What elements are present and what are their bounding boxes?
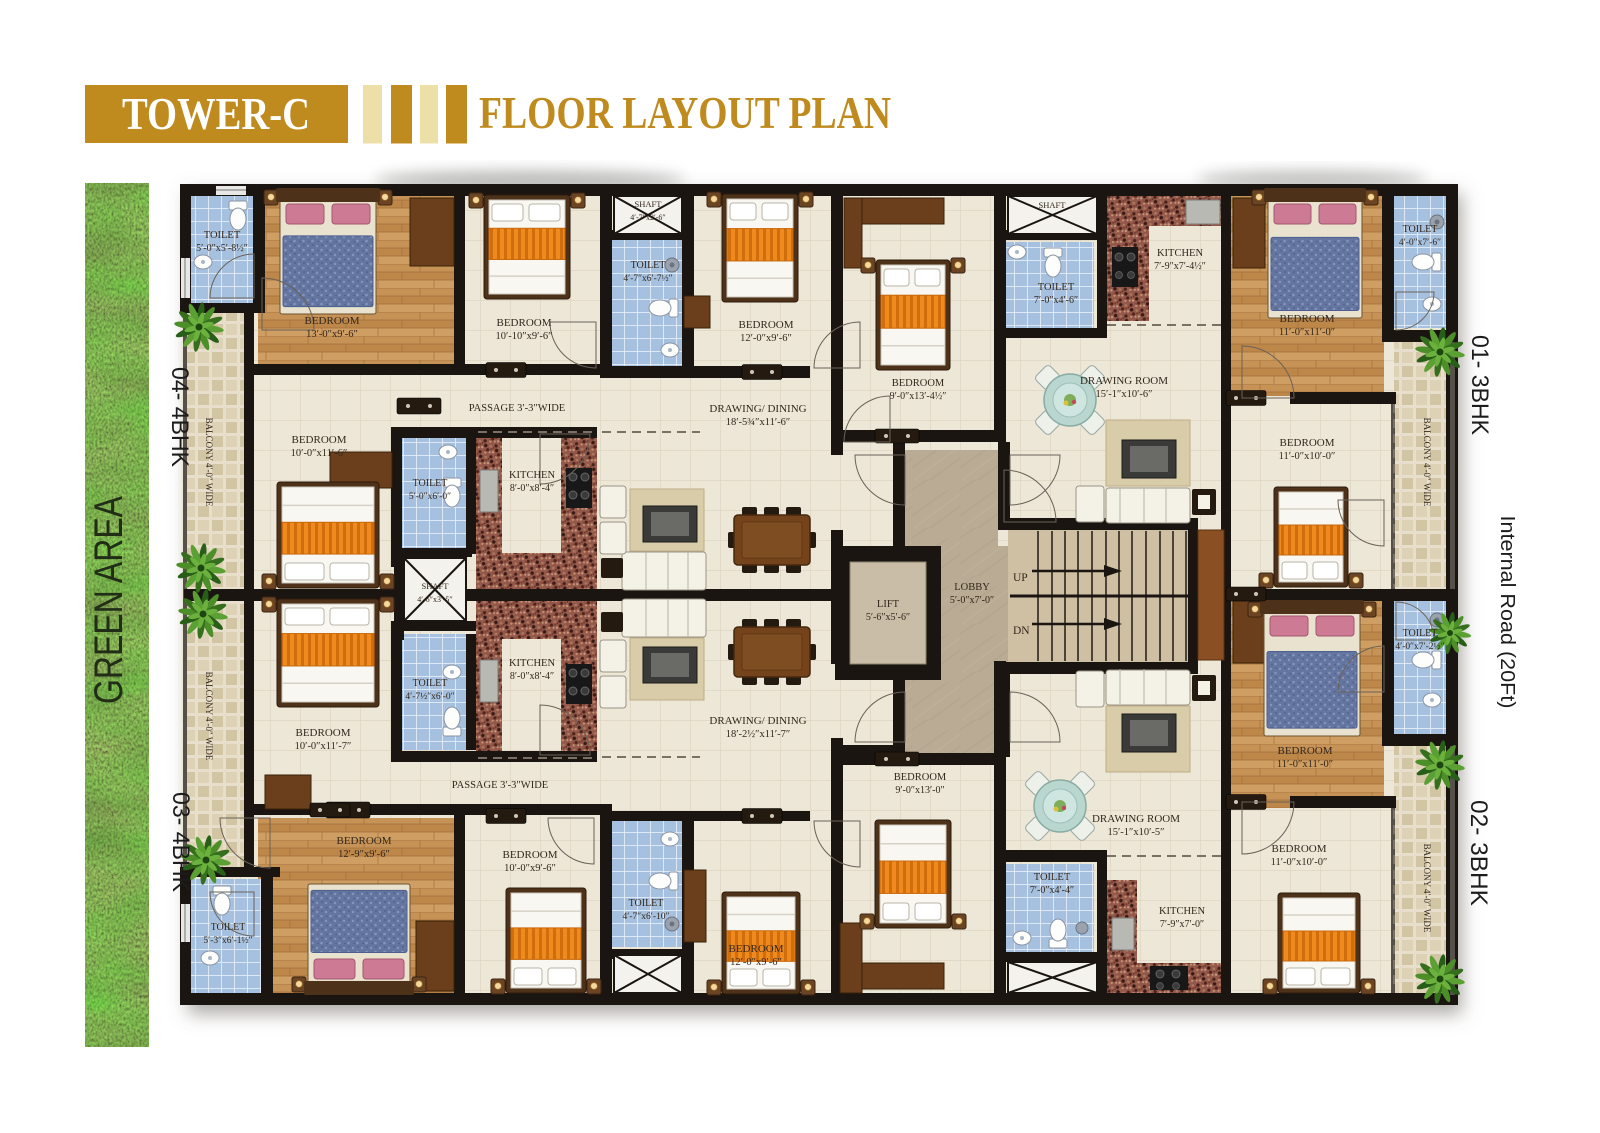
- svg-text:02- 3BHK: 02- 3BHK: [1465, 800, 1492, 906]
- svg-text:4′-6″x3′-5″: 4′-6″x3′-5″: [417, 595, 453, 604]
- svg-text:7′-9″x7′-0″: 7′-9″x7′-0″: [1160, 919, 1204, 930]
- svg-text:GREEN AREA: GREEN AREA: [87, 496, 131, 704]
- svg-text:5′-0″x5′-8½″: 5′-0″x5′-8½″: [196, 243, 248, 254]
- svg-text:7′-0″x4′-4″: 7′-0″x4′-4″: [1030, 885, 1074, 896]
- svg-text:4′-7″x6′-10″: 4′-7″x6′-10″: [623, 912, 670, 922]
- svg-text:KITCHEN: KITCHEN: [1159, 906, 1205, 917]
- svg-text:SHAFT: SHAFT: [1039, 200, 1067, 210]
- svg-text:TOILET: TOILET: [211, 922, 246, 933]
- svg-text:8′-0″x8′-4″: 8′-0″x8′-4″: [510, 671, 554, 682]
- svg-text:12′-9″x9′-6″: 12′-9″x9′-6″: [338, 849, 390, 860]
- svg-text:BALCONY 4′-0″ WIDE: BALCONY 4′-0″ WIDE: [204, 418, 214, 507]
- svg-text:11′-0″x10′-0″: 11′-0″x10′-0″: [1271, 857, 1328, 868]
- svg-text:BALCONY 4′-0″ WIDE: BALCONY 4′-0″ WIDE: [1422, 418, 1432, 507]
- svg-text:DN: DN: [1013, 625, 1030, 637]
- svg-text:SHAFT: SHAFT: [422, 581, 450, 591]
- svg-text:TOILET: TOILET: [1403, 224, 1438, 235]
- svg-text:7′-9″x7′-4½″: 7′-9″x7′-4½″: [1154, 261, 1206, 272]
- svg-text:BEDROOM: BEDROOM: [304, 315, 359, 327]
- svg-text:KITCHEN: KITCHEN: [509, 470, 555, 481]
- svg-text:TOILET: TOILET: [413, 478, 448, 489]
- svg-text:DRAWING/ DINING: DRAWING/ DINING: [709, 715, 806, 727]
- svg-text:BEDROOM: BEDROOM: [502, 849, 557, 861]
- svg-text:BEDROOM: BEDROOM: [1279, 437, 1334, 449]
- svg-text:TOILET: TOILET: [631, 260, 666, 271]
- svg-text:LOBBY: LOBBY: [954, 582, 990, 593]
- svg-text:5′-3″x6′-1½″: 5′-3″x6′-1½″: [203, 935, 252, 946]
- svg-text:13′-0″x9′-6″: 13′-0″x9′-6″: [306, 329, 358, 340]
- svg-text:BEDROOM: BEDROOM: [1271, 843, 1326, 855]
- svg-text:12′-0″x9′-6″: 12′-0″x9′-6″: [730, 957, 782, 968]
- svg-text:BEDROOM: BEDROOM: [738, 319, 793, 331]
- svg-text:TOILET: TOILET: [1403, 628, 1438, 639]
- svg-text:10′-0″x11′-7″: 10′-0″x11′-7″: [295, 741, 352, 752]
- svg-text:DRAWING/ DINING: DRAWING/ DINING: [709, 403, 806, 415]
- svg-text:Internal Road (20Ft): Internal Road (20Ft): [1496, 516, 1518, 709]
- svg-text:10′-10″x9′-6″: 10′-10″x9′-6″: [495, 331, 552, 342]
- svg-text:TOILET: TOILET: [413, 678, 448, 689]
- svg-text:10′-0″x9′-6″: 10′-0″x9′-6″: [504, 863, 556, 874]
- svg-text:BEDROOM: BEDROOM: [496, 317, 551, 329]
- svg-text:KITCHEN: KITCHEN: [509, 658, 555, 669]
- svg-text:BEDROOM: BEDROOM: [892, 378, 945, 389]
- svg-text:4′-7″x2′-6″: 4′-7″x2′-6″: [630, 213, 666, 222]
- svg-text:TOILET: TOILET: [1038, 282, 1075, 293]
- svg-text:12′-0″x9′-6″: 12′-0″x9′-6″: [740, 333, 792, 344]
- svg-text:BALCONY 4′-0″ WIDE: BALCONY 4′-0″ WIDE: [204, 672, 214, 761]
- svg-text:03- 4BHK: 03- 4BHK: [167, 792, 194, 892]
- svg-text:UP: UP: [1013, 572, 1028, 584]
- svg-text:TOILET: TOILET: [1034, 872, 1071, 883]
- svg-text:11′-0″x10′-0″: 11′-0″x10′-0″: [1279, 451, 1336, 462]
- svg-text:10′-0″x11′-6″: 10′-0″x11′-6″: [291, 448, 348, 459]
- svg-text:KITCHEN: KITCHEN: [1157, 248, 1203, 259]
- svg-text:BEDROOM: BEDROOM: [336, 835, 391, 847]
- svg-text:9′-0″x13′-0″: 9′-0″x13′-0″: [895, 785, 944, 796]
- svg-text:18′-2½″x11′-7″: 18′-2½″x11′-7″: [726, 729, 791, 740]
- svg-text:BEDROOM: BEDROOM: [1279, 313, 1334, 325]
- svg-text:15′-1″x10′-6″: 15′-1″x10′-6″: [1095, 389, 1152, 400]
- svg-text:5′-6″x5′-6″: 5′-6″x5′-6″: [866, 612, 910, 623]
- svg-text:BEDROOM: BEDROOM: [291, 434, 346, 446]
- svg-text:15′-1″x10′-5″: 15′-1″x10′-5″: [1107, 827, 1164, 838]
- svg-text:18′-5¾″x11′-6″: 18′-5¾″x11′-6″: [726, 417, 791, 428]
- svg-text:11′-0″x11′-0″: 11′-0″x11′-0″: [1279, 327, 1335, 338]
- svg-text:BEDROOM: BEDROOM: [728, 943, 783, 955]
- svg-text:LIFT: LIFT: [877, 599, 900, 610]
- svg-text:4′-7″x6′-7½″: 4′-7″x6′-7½″: [623, 273, 672, 284]
- svg-text:DRAWING ROOM: DRAWING ROOM: [1092, 813, 1180, 825]
- svg-text:4′-7½″x6′-0″: 4′-7½″x6′-0″: [405, 691, 454, 702]
- svg-text:04- 4BHK: 04- 4BHK: [166, 367, 193, 467]
- svg-text:4′-0″x7′-6″: 4′-0″x7′-6″: [1399, 238, 1441, 248]
- svg-text:01- 3BHK: 01- 3BHK: [1466, 335, 1493, 435]
- svg-text:BEDROOM: BEDROOM: [295, 727, 350, 739]
- svg-text:TOILET: TOILET: [629, 898, 664, 909]
- svg-text:5′-0″x6′-0″: 5′-0″x6′-0″: [409, 492, 451, 502]
- svg-text:TOWER-C: TOWER-C: [122, 88, 310, 139]
- svg-text:4′-0″x7′-2½″: 4′-0″x7′-2½″: [1395, 641, 1444, 652]
- svg-text:FLOOR LAYOUT PLAN: FLOOR LAYOUT PLAN: [479, 87, 891, 138]
- svg-text:PASSAGE 3′-3″WIDE: PASSAGE 3′-3″WIDE: [452, 780, 548, 791]
- svg-text:SHAFT: SHAFT: [635, 199, 663, 209]
- svg-text:PASSAGE 3′-3″WIDE: PASSAGE 3′-3″WIDE: [469, 403, 565, 414]
- svg-text:7′-0″x4′-6″: 7′-0″x4′-6″: [1034, 295, 1078, 306]
- svg-text:9′-0″x13′-4½″: 9′-0″x13′-4½″: [890, 391, 947, 402]
- svg-text:BEDROOM: BEDROOM: [1277, 745, 1332, 757]
- svg-text:TOILET: TOILET: [204, 230, 241, 241]
- svg-text:8′-0″x8′-4″: 8′-0″x8′-4″: [510, 483, 554, 494]
- svg-text:BEDROOM: BEDROOM: [894, 772, 947, 783]
- svg-text:5′-0″x7′-0″: 5′-0″x7′-0″: [950, 595, 994, 606]
- svg-text:11′-0″x11′-0″: 11′-0″x11′-0″: [1277, 759, 1333, 770]
- svg-text:BALCONY 4′-0″ WIDE: BALCONY 4′-0″ WIDE: [1422, 844, 1432, 933]
- svg-text:DRAWING ROOM: DRAWING ROOM: [1080, 375, 1168, 387]
